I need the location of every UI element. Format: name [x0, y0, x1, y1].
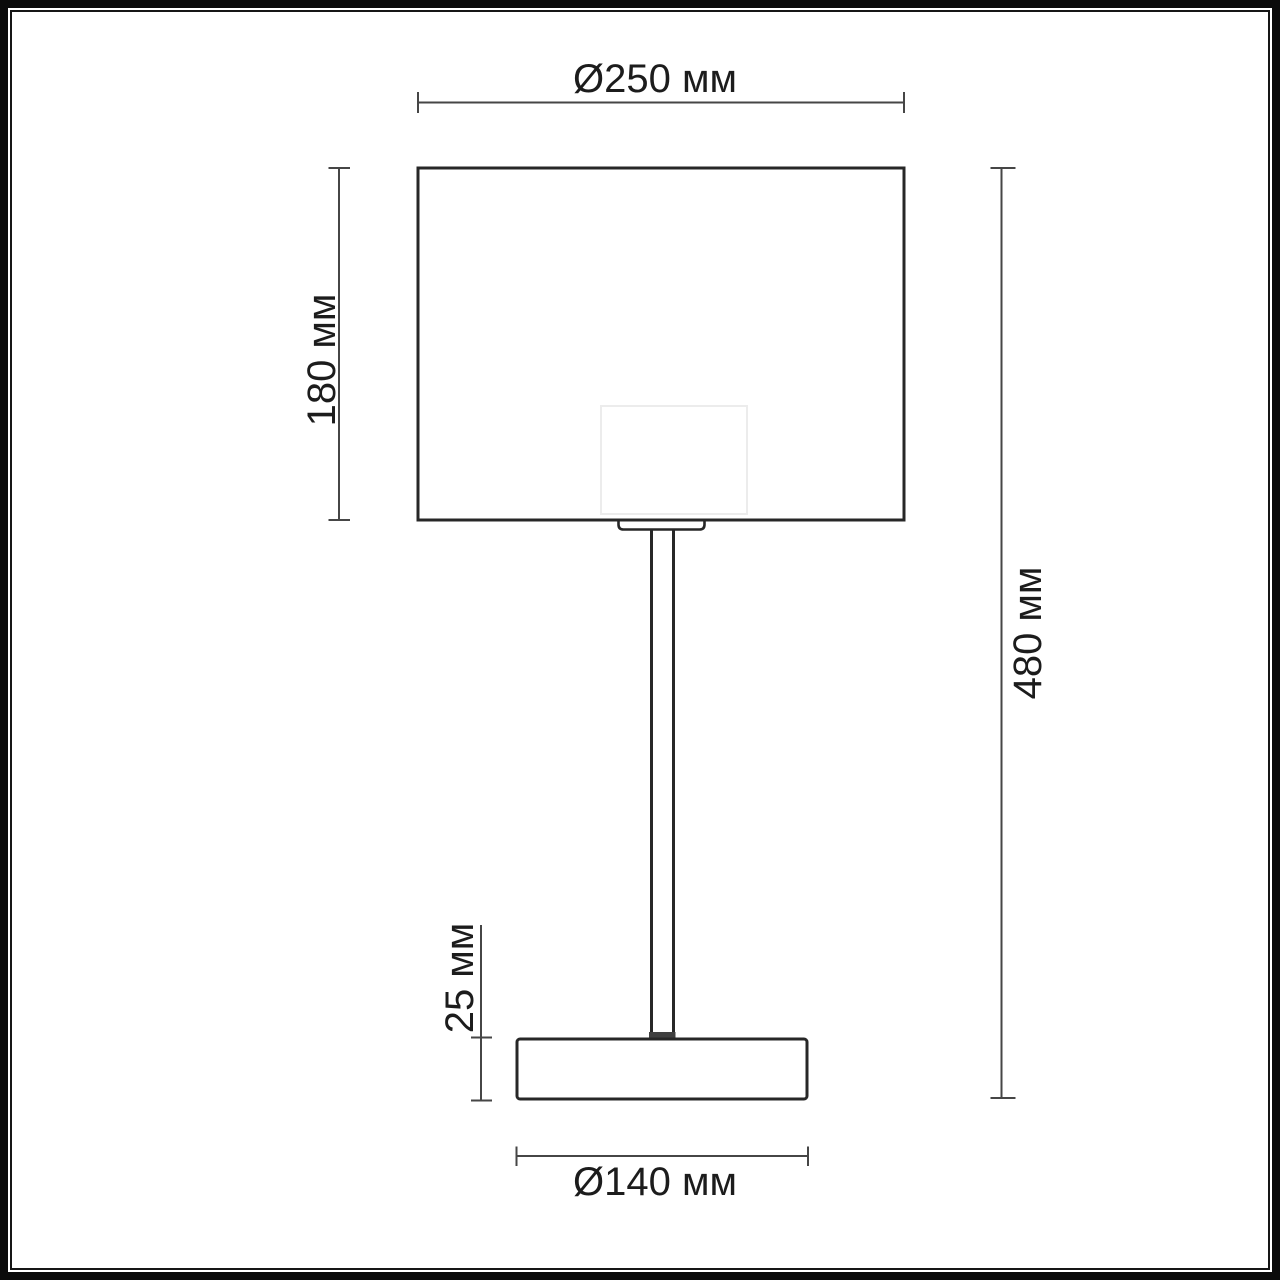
- svg-text:Ø250 мм: Ø250 мм: [573, 57, 737, 101]
- svg-text:25 мм: 25 мм: [438, 923, 482, 1034]
- svg-text:180 мм: 180 мм: [300, 294, 344, 427]
- svg-text:Ø140 мм: Ø140 мм: [573, 1160, 737, 1204]
- svg-text:480 мм: 480 мм: [1006, 567, 1050, 700]
